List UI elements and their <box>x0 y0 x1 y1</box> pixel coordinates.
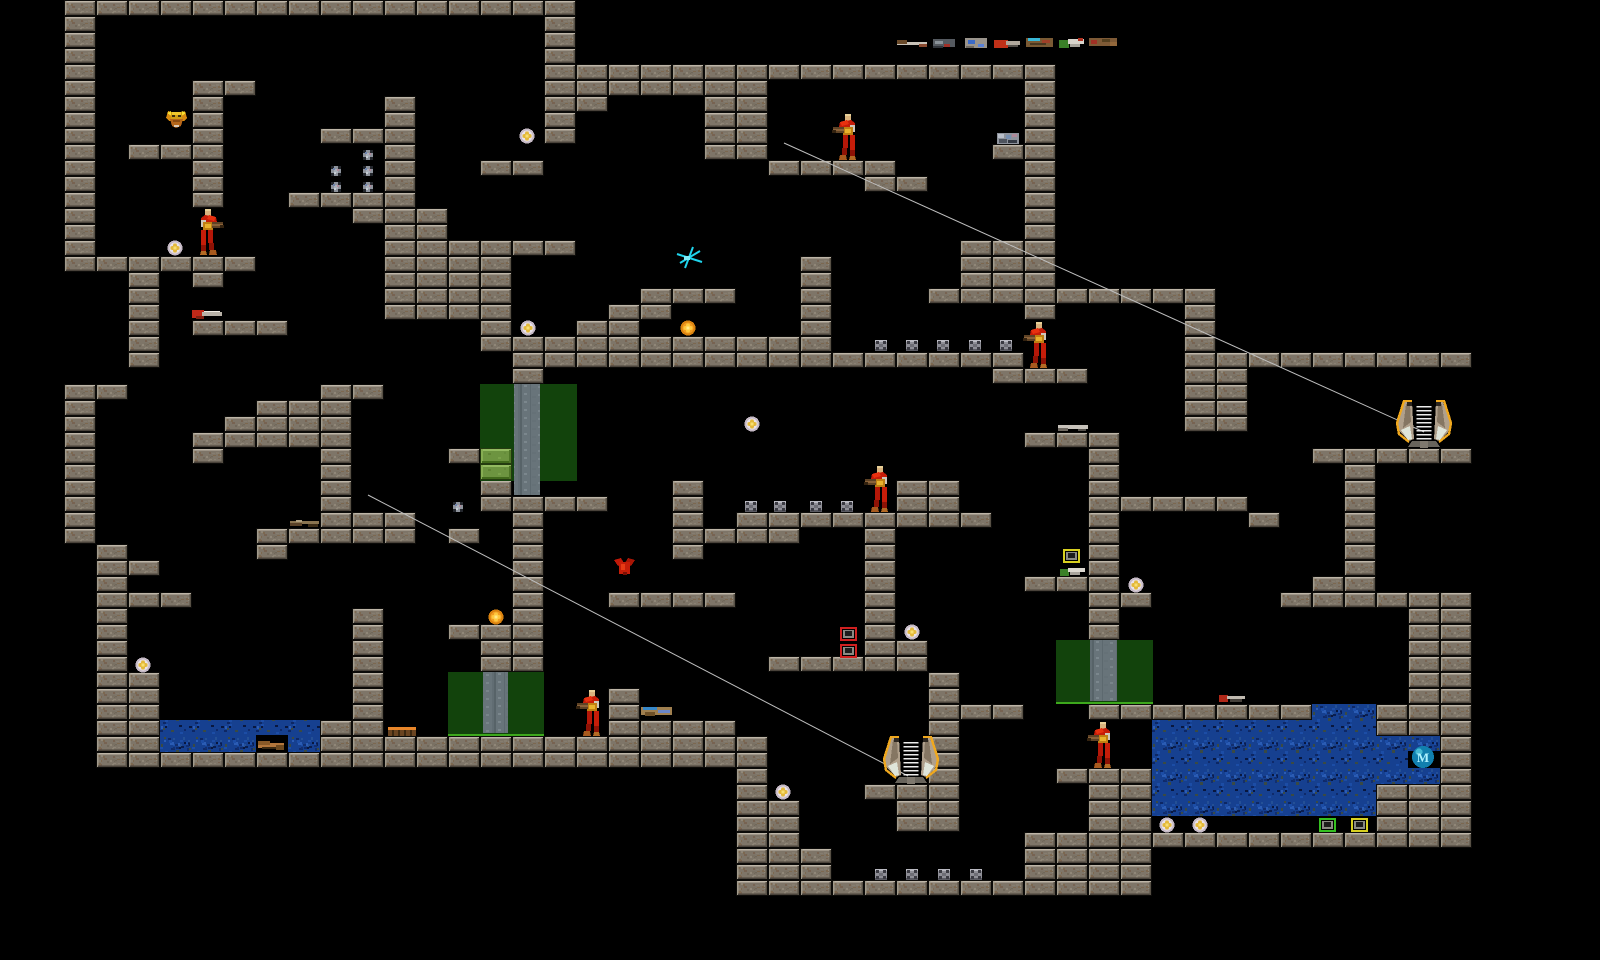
svg-text:M: M <box>1417 750 1429 765</box>
